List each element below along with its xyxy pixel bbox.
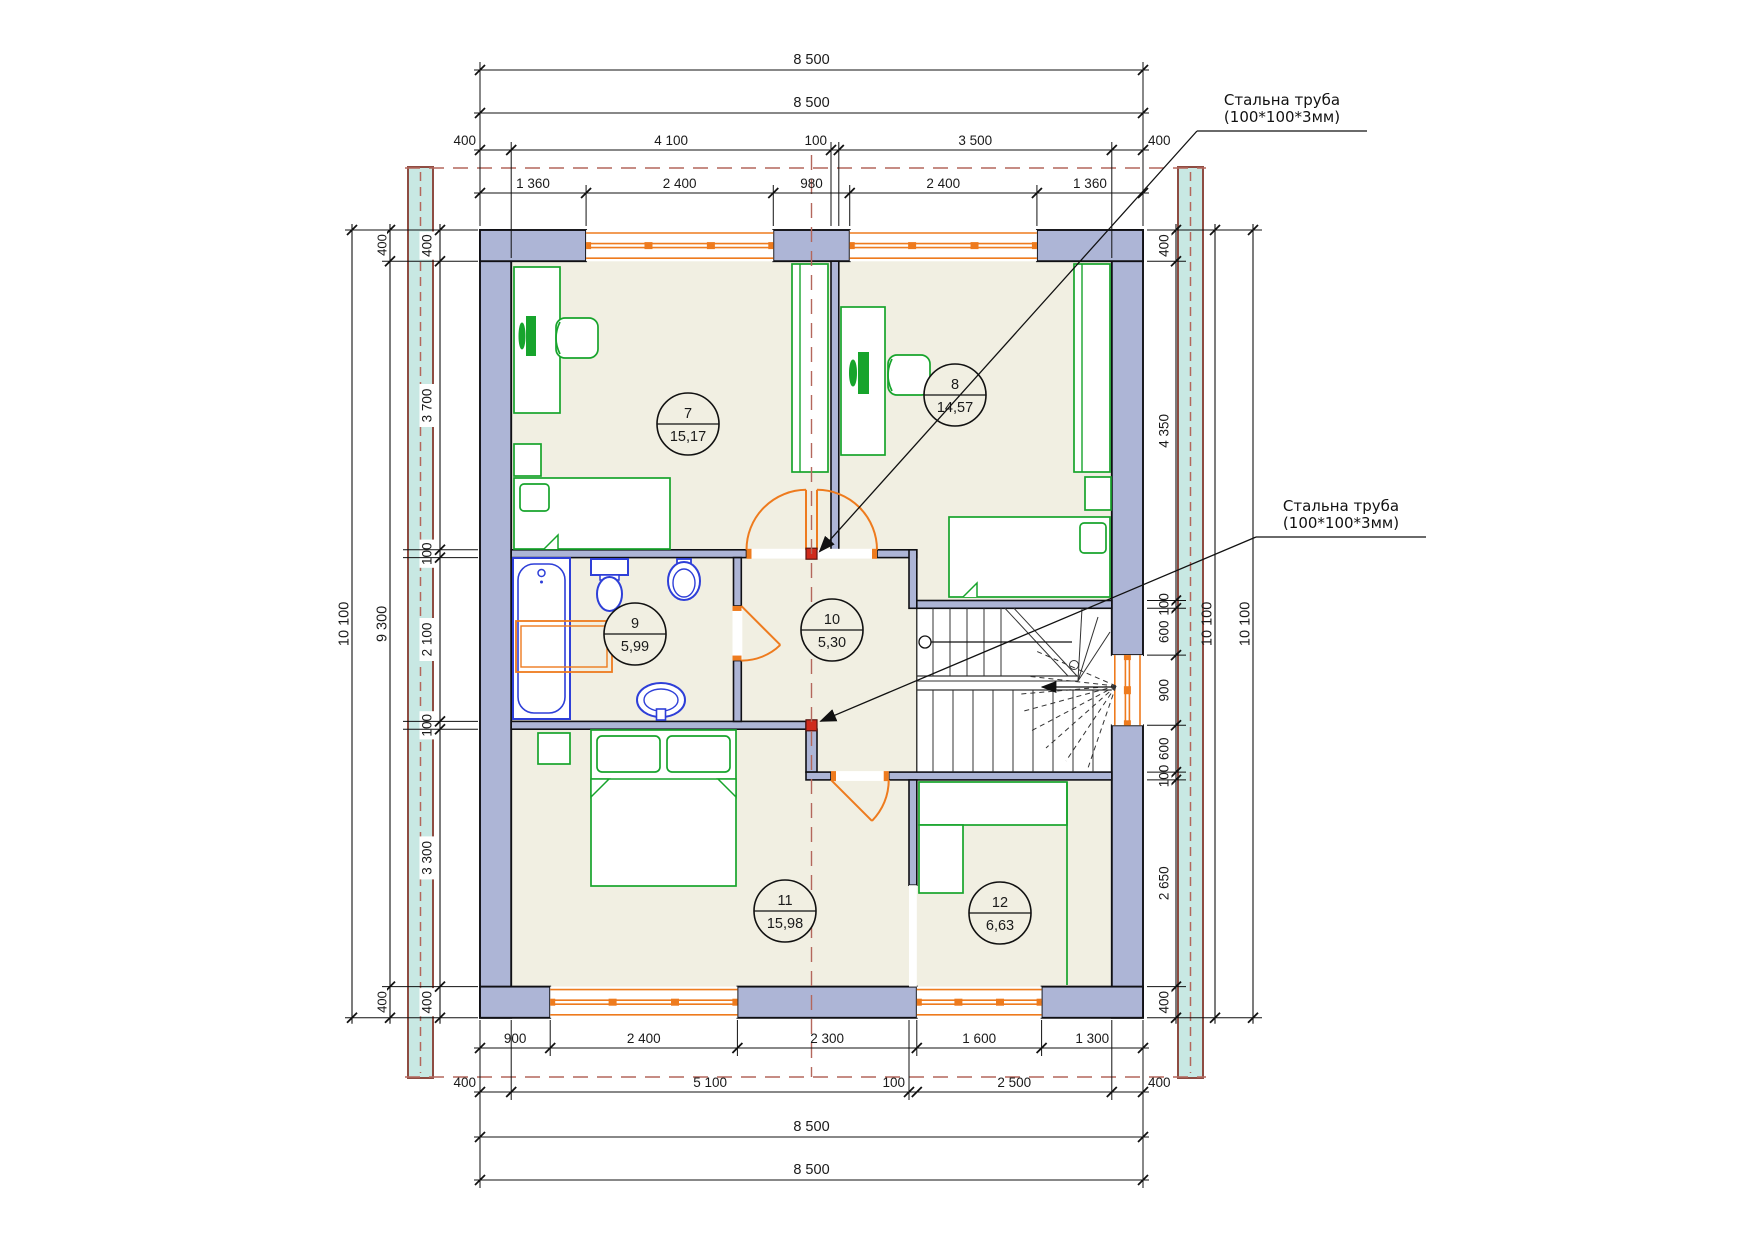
dim-label: 400 [375, 234, 390, 256]
dim-label: 8 500 [793, 1119, 829, 1135]
dim-label: 100 [420, 542, 435, 565]
room-label-10: 105,30 [801, 599, 863, 661]
dim-label: 14,57 [937, 400, 973, 416]
dim-label: 2 300 [810, 1031, 844, 1046]
dim-label: 10 [824, 612, 840, 628]
dim-label: 8 500 [793, 1162, 829, 1178]
dim-label: 4 350 [1157, 414, 1172, 448]
dim-label: 400 [1148, 1075, 1171, 1090]
dim-label: 8 500 [793, 52, 829, 68]
annotation-steel-pipe-2: Стальна труба (100*100*3мм) [1251, 498, 1431, 532]
dim-label: 1 600 [962, 1031, 996, 1046]
dim-label: 900 [1157, 679, 1172, 702]
dim-label: 400 [420, 234, 435, 257]
dim-label: 1 300 [1075, 1031, 1109, 1046]
dim-label: 5 100 [693, 1075, 727, 1090]
dim-label: 900 [504, 1031, 527, 1046]
dim-label: 400 [453, 133, 476, 148]
dim-label: 8 500 [793, 95, 829, 111]
dim-label: 400 [375, 991, 390, 1013]
annotation-text: (100*100*3мм) [1192, 109, 1372, 126]
dim-label: 400 [1157, 234, 1172, 257]
floor-plan-svg: 715,17814,5795,99105,301115,98126,638 50… [0, 0, 1754, 1241]
dim-label: 4 100 [654, 133, 688, 148]
dim-label: 2 500 [997, 1075, 1031, 1090]
dim-label: 10 100 [337, 602, 353, 646]
room-label-9: 95,99 [604, 603, 666, 665]
dim-label: 11 [777, 893, 792, 909]
room-label-7: 715,17 [657, 393, 719, 455]
dim-label: 980 [800, 176, 823, 191]
room-label-8: 814,57 [924, 364, 986, 426]
dim-label: 100 [882, 1075, 905, 1090]
dim-label: 100 [1157, 765, 1172, 788]
room-label-12: 126,63 [969, 882, 1031, 944]
dim-label: 1 360 [516, 176, 550, 191]
dim-label: 9 [631, 616, 639, 632]
dim-label: 15,98 [767, 916, 803, 932]
dim-label: 100 [1157, 593, 1172, 616]
dim-label: 1 360 [1073, 176, 1107, 191]
dim-label: 2 650 [1157, 866, 1172, 900]
dim-label: 3 300 [420, 841, 435, 875]
dim-label: 15,17 [670, 429, 706, 445]
dim-label: 600 [1157, 737, 1172, 760]
dim-label: 100 [420, 714, 435, 737]
dim-label: 2 400 [926, 176, 960, 191]
dim-label: 2 400 [627, 1031, 661, 1046]
room-label-11: 1115,98 [754, 880, 816, 942]
dim-label: 400 [420, 991, 435, 1014]
dim-label: 3 700 [420, 389, 435, 423]
dim-label: 5,30 [818, 635, 846, 651]
dim-label: 6,63 [986, 918, 1014, 934]
dim-label: 400 [1148, 133, 1171, 148]
dim-label: 100 [804, 133, 827, 148]
annotation-text: Стальна труба [1251, 498, 1431, 515]
dim-label: 2 400 [663, 176, 697, 191]
dim-label: 10 100 [1200, 602, 1216, 646]
annotation-text: Стальна труба [1192, 92, 1372, 109]
dim-label: 9 300 [375, 606, 391, 642]
dim-label: 8 [951, 377, 959, 393]
dim-label: 12 [992, 895, 1008, 911]
dim-label: 400 [453, 1075, 476, 1090]
dim-label: 10 100 [1238, 602, 1254, 646]
dim-label: 5,99 [621, 639, 649, 655]
dim-label: 3 500 [958, 133, 992, 148]
annotation-text: (100*100*3мм) [1251, 515, 1431, 532]
dim-label: 2 100 [420, 623, 435, 657]
annotation-steel-pipe-1: Стальна труба (100*100*3мм) [1192, 92, 1372, 126]
floor-plan-canvas: 715,17814,5795,99105,301115,98126,638 50… [0, 0, 1754, 1241]
dim-label: 7 [684, 406, 692, 422]
dim-label: 400 [1157, 991, 1172, 1014]
dim-label: 600 [1157, 620, 1172, 643]
